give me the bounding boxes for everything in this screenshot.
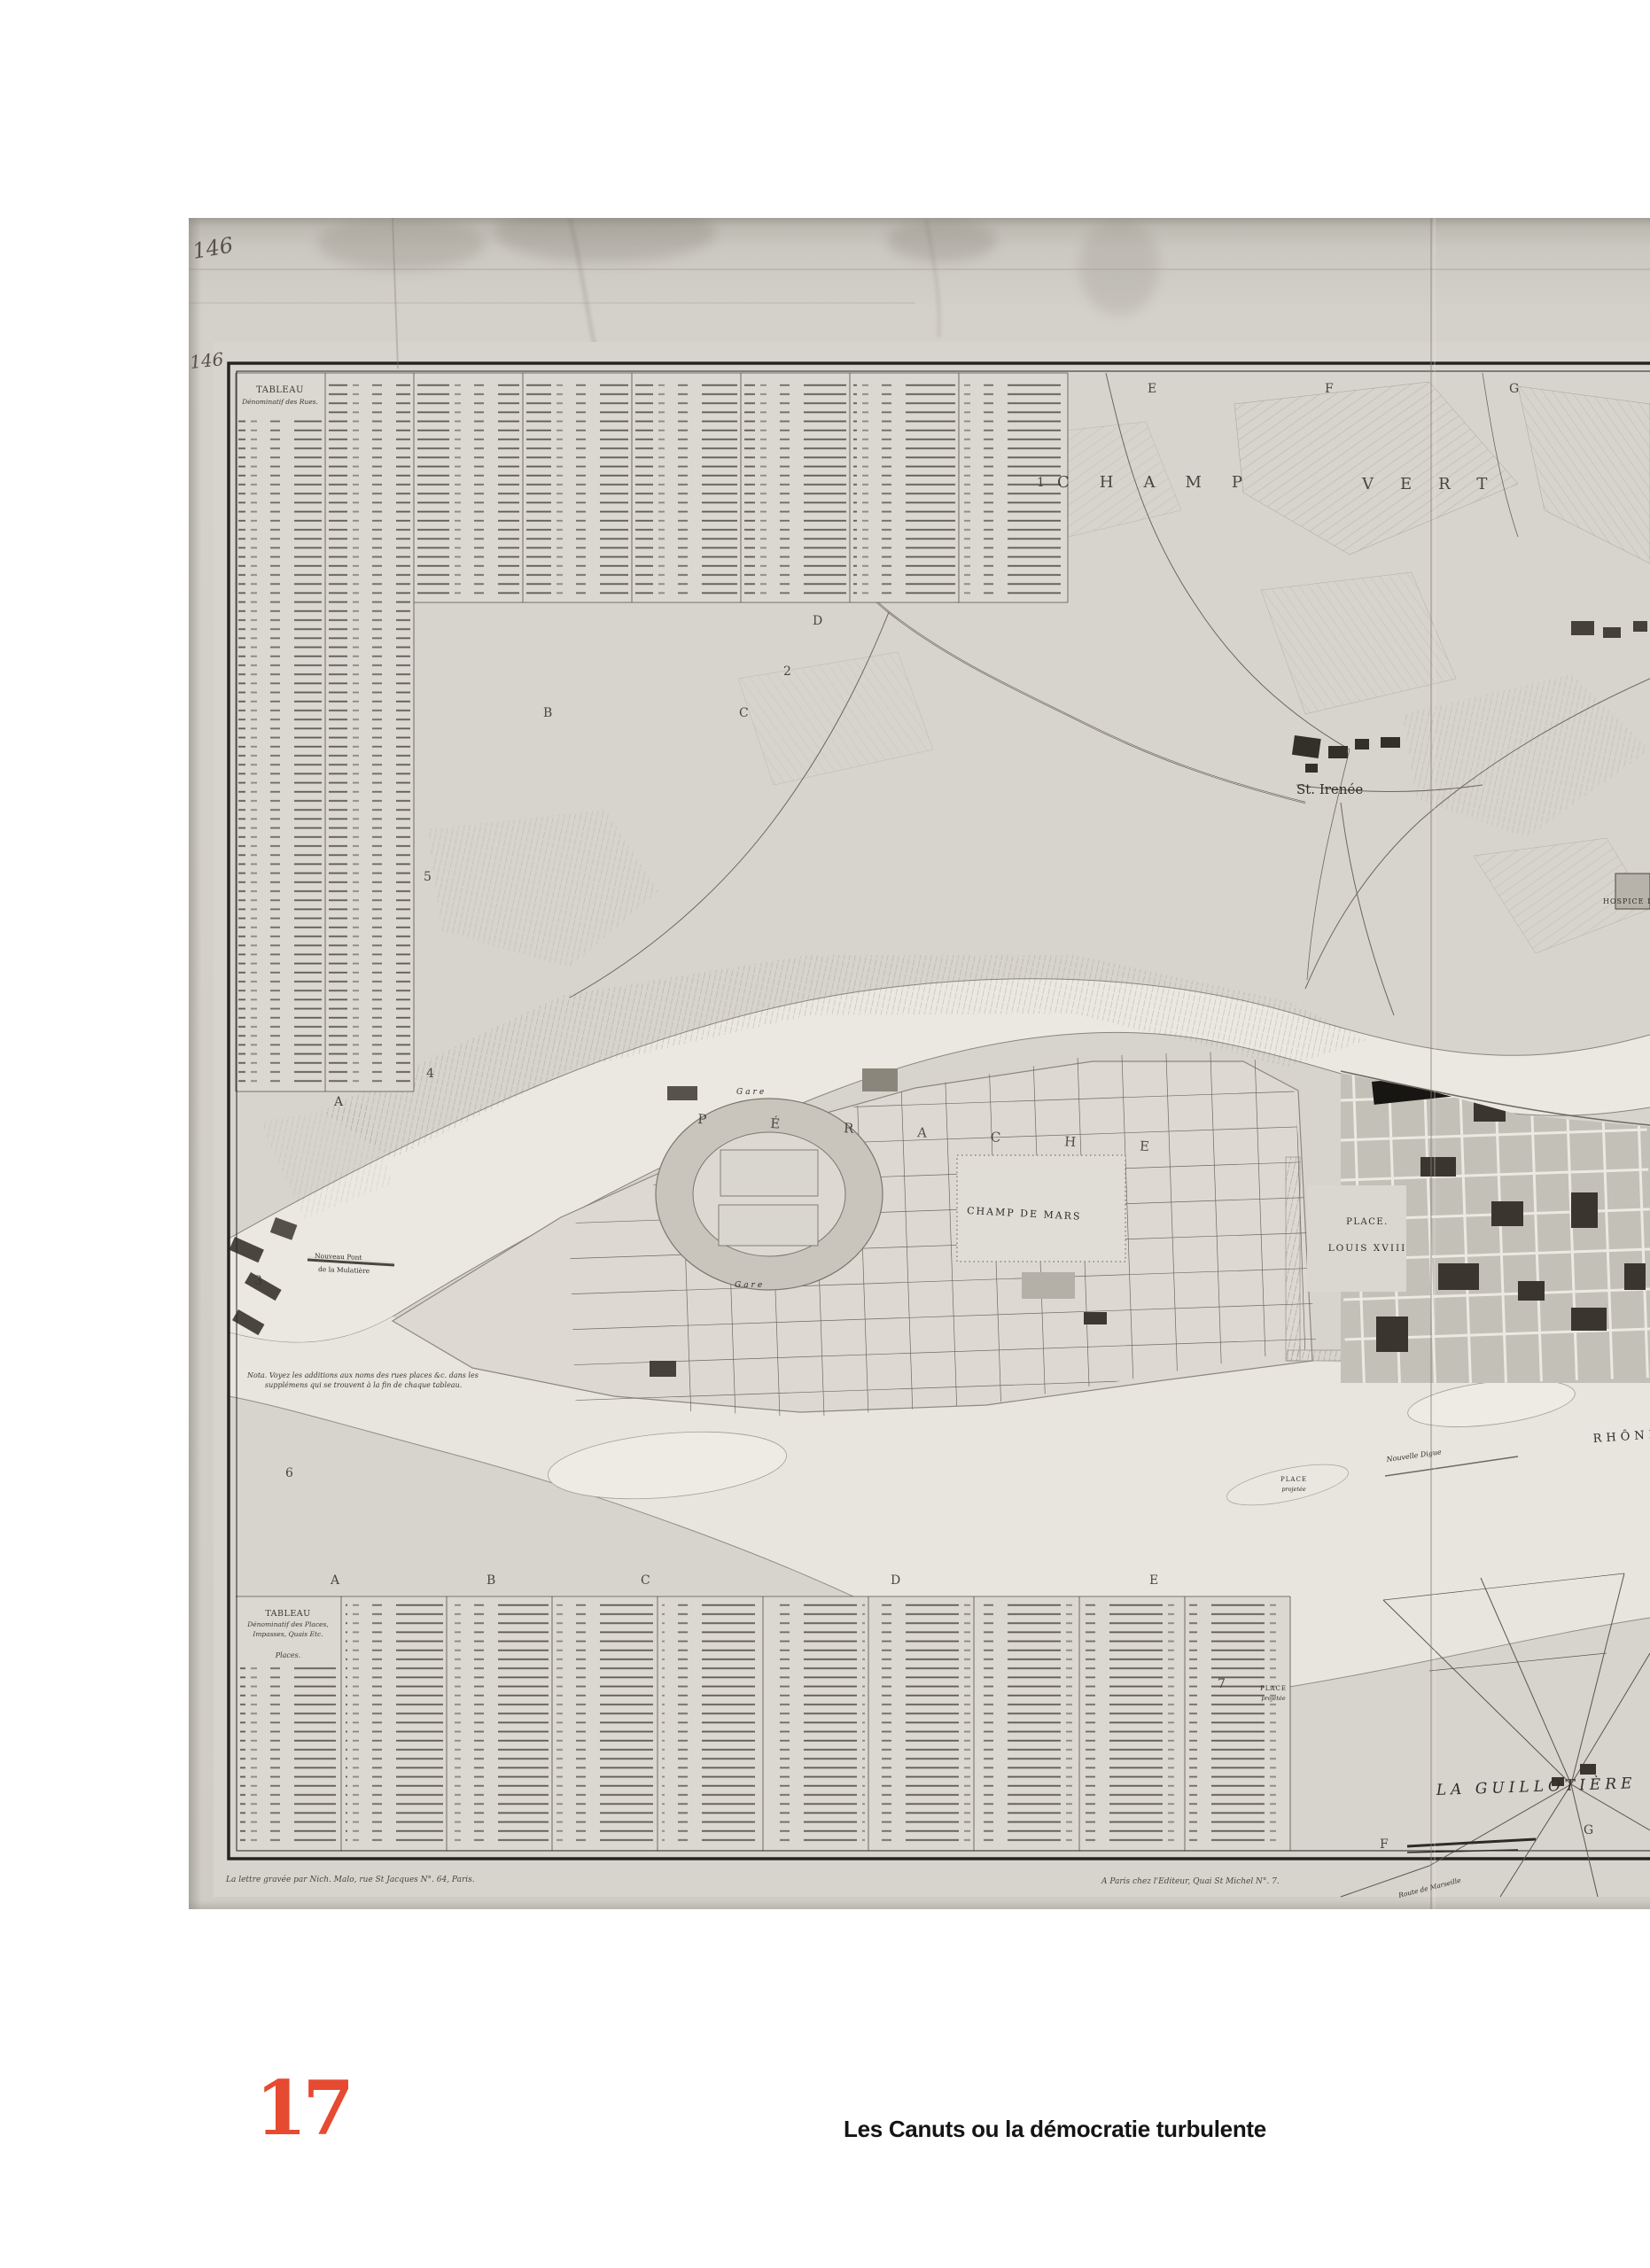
label-champ: CHAMP [1057, 473, 1273, 492]
label-pont-1: Nouveau Pont [315, 1252, 362, 1262]
grid-letter: B [543, 706, 552, 720]
page-number: 17 [255, 2071, 350, 2146]
note-line2: supplémens qui se trouvent à la fin de c… [265, 1381, 462, 1389]
label-hospice: HOSPICE DE [1603, 897, 1650, 905]
grid-number: 1 [1037, 476, 1045, 490]
book-page: TABLEAU Dénominatif des Rues. [0, 0, 1650, 2268]
places-table-subtitle: Dénominatif des Places, [246, 1620, 328, 1628]
places-table-subtitle2: Impasses, Quais Etc. [252, 1630, 323, 1638]
label-place-proj-1b: projetée [1281, 1486, 1306, 1493]
label-st-irenee: St. Irenée [1296, 781, 1363, 797]
grid-letter: C [739, 706, 749, 720]
note-line1: Nota. Voyez les additions aux noms des r… [246, 1371, 479, 1379]
grid-letter: G [1509, 382, 1519, 396]
streets-table-subtitle: Dénominatif des Rues. [241, 398, 318, 406]
map-scan: TABLEAU Dénominatif des Rues. [189, 218, 1650, 1909]
handwritten-number-margin: 146 [189, 348, 225, 373]
label-place-louis-1: PLACE. [1346, 1217, 1389, 1227]
map-scan-svg: TABLEAU Dénominatif des Rues. [189, 218, 1650, 1909]
grid-number: 5 [424, 870, 432, 884]
label-place-proj-1a: PLACE [1280, 1476, 1307, 1483]
grid-number: 3 [254, 1274, 262, 1288]
grid-letter: B [486, 1573, 495, 1588]
place-louis-square [1307, 1185, 1406, 1292]
places-table-title: TABLEAU [265, 1609, 310, 1619]
label-gare-north: Gare [736, 1088, 767, 1097]
places-table-section: Places. [275, 1651, 301, 1659]
handwritten-number-top: 146 [191, 232, 235, 264]
grid-letter: F [1325, 382, 1334, 396]
label-place-proj-2b: projetée [1261, 1695, 1286, 1702]
grid-number: 4 [426, 1067, 434, 1081]
grid-letter: D [813, 614, 822, 628]
streets-table-title: TABLEAU [256, 385, 304, 395]
label-place-louis-2: LOUIS XVIII [1328, 1243, 1407, 1254]
label-place-proj-2a: PLACE [1260, 1685, 1287, 1692]
label-gare-south: Gare [735, 1281, 765, 1290]
grid-letter: C [641, 1573, 650, 1588]
grid-letter: E [1148, 382, 1156, 396]
chapter-caption: Les Canuts ou la démocratie turbulente [844, 2116, 1266, 2143]
grid-letter: A [330, 1573, 340, 1588]
label-vert: VERT [1361, 475, 1514, 493]
grid-letter: G [1584, 1823, 1593, 1837]
grid-number: 7 [1218, 1677, 1226, 1691]
grid-number: 2 [783, 664, 791, 679]
imprint-center: A Paris chez l'Editeur, Quai St Michel N… [1101, 1877, 1280, 1886]
grid-letter: A [333, 1095, 344, 1109]
grid-letter: E [1149, 1573, 1158, 1588]
imprint-left: La lettre gravée par Nich. Malo, rue St … [225, 1875, 475, 1884]
grid-letter: F [1380, 1837, 1389, 1852]
grid-number: 6 [285, 1466, 293, 1480]
grid-letter: D [891, 1573, 900, 1588]
